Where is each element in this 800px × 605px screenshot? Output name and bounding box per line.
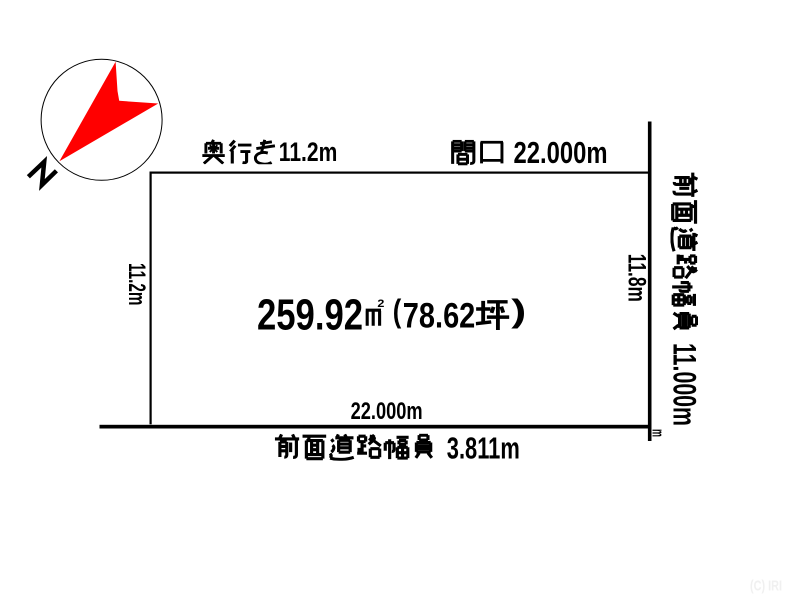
svg-text:22.000m: 22.000m [351, 398, 423, 425]
svg-text:11.2m: 11.2m [123, 263, 150, 306]
svg-text:11.000m: 11.000m [667, 343, 703, 426]
svg-text:11.2m: 11.2m [279, 137, 338, 167]
svg-text:): ) [511, 293, 526, 329]
svg-text:11.8m: 11.8m [623, 254, 651, 302]
svg-text:2: 2 [377, 298, 384, 310]
svg-text:m: m [649, 429, 668, 437]
svg-text:(C) IRI: (C) IRI [750, 578, 782, 595]
svg-text:3.811m: 3.811m [447, 431, 520, 466]
svg-text:22.000m: 22.000m [514, 135, 608, 170]
svg-text:(: ( [393, 293, 402, 329]
svg-text:259.92: 259.92 [257, 291, 363, 340]
svg-text:78.62: 78.62 [403, 296, 476, 335]
